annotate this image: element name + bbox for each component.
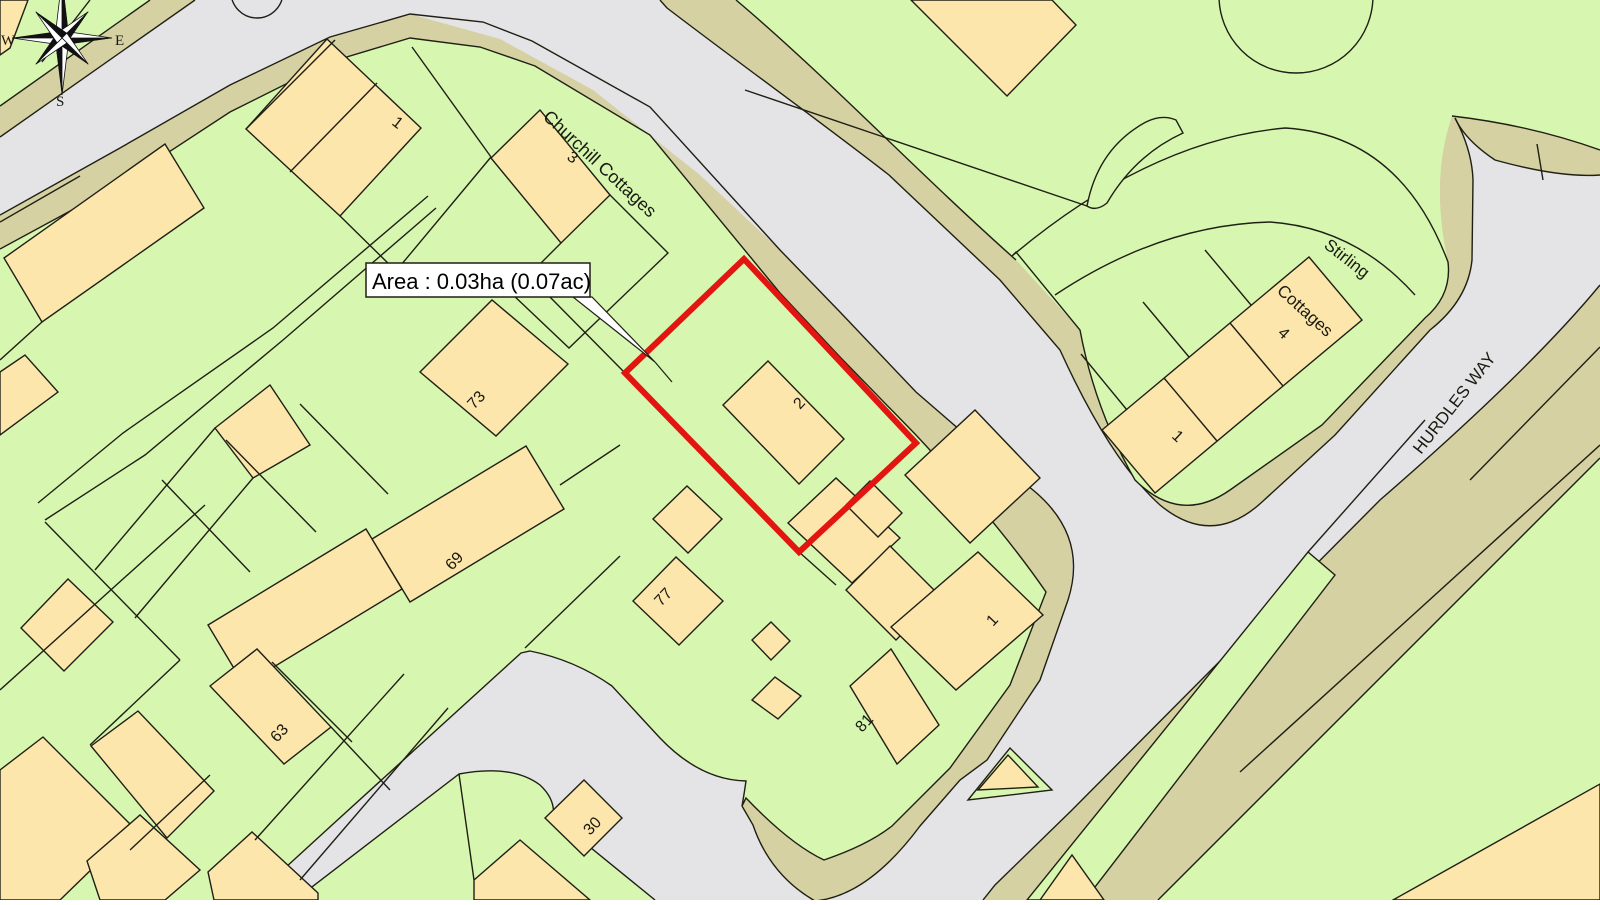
svg-text:Area : 0.03ha (0.07ac): Area : 0.03ha (0.07ac)	[372, 269, 591, 294]
svg-text:E: E	[115, 33, 124, 49]
svg-text:S: S	[56, 94, 64, 110]
svg-text:W: W	[1, 33, 16, 49]
